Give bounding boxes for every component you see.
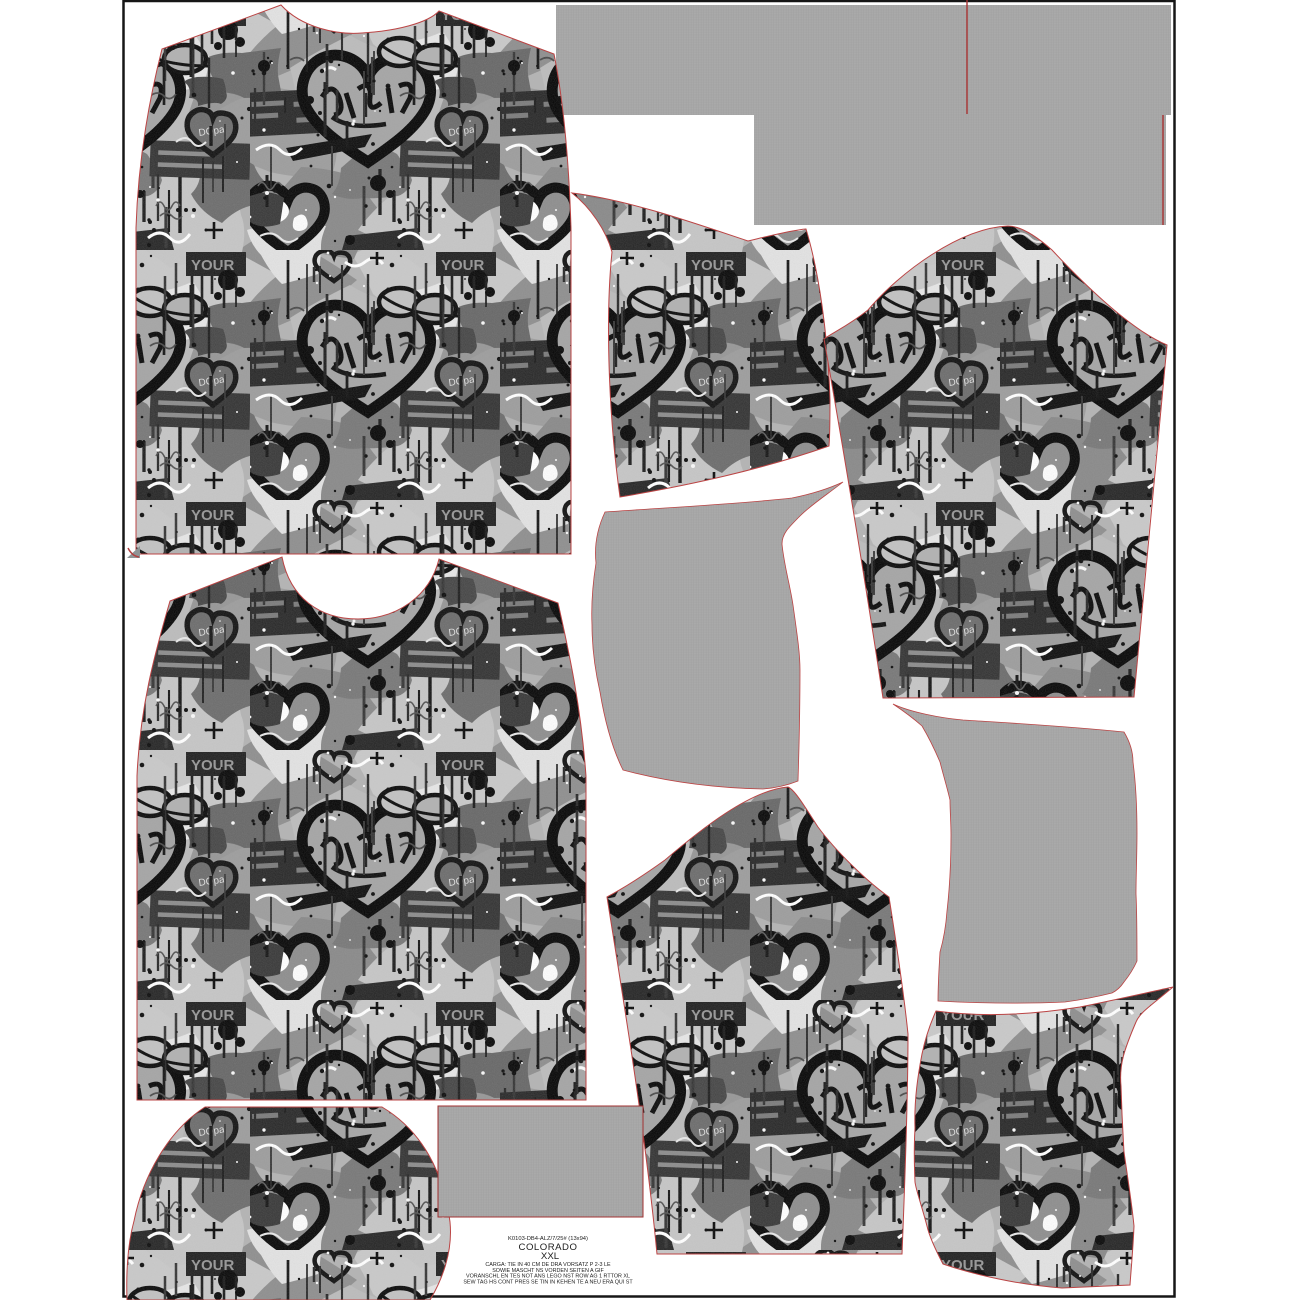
- svg-text:XXL: XXL: [541, 1251, 560, 1262]
- svg-text:SEW TAG HS CONT PRES SE TIN IN: SEW TAG HS CONT PRES SE TIN IN KEHEN TE …: [463, 1279, 633, 1285]
